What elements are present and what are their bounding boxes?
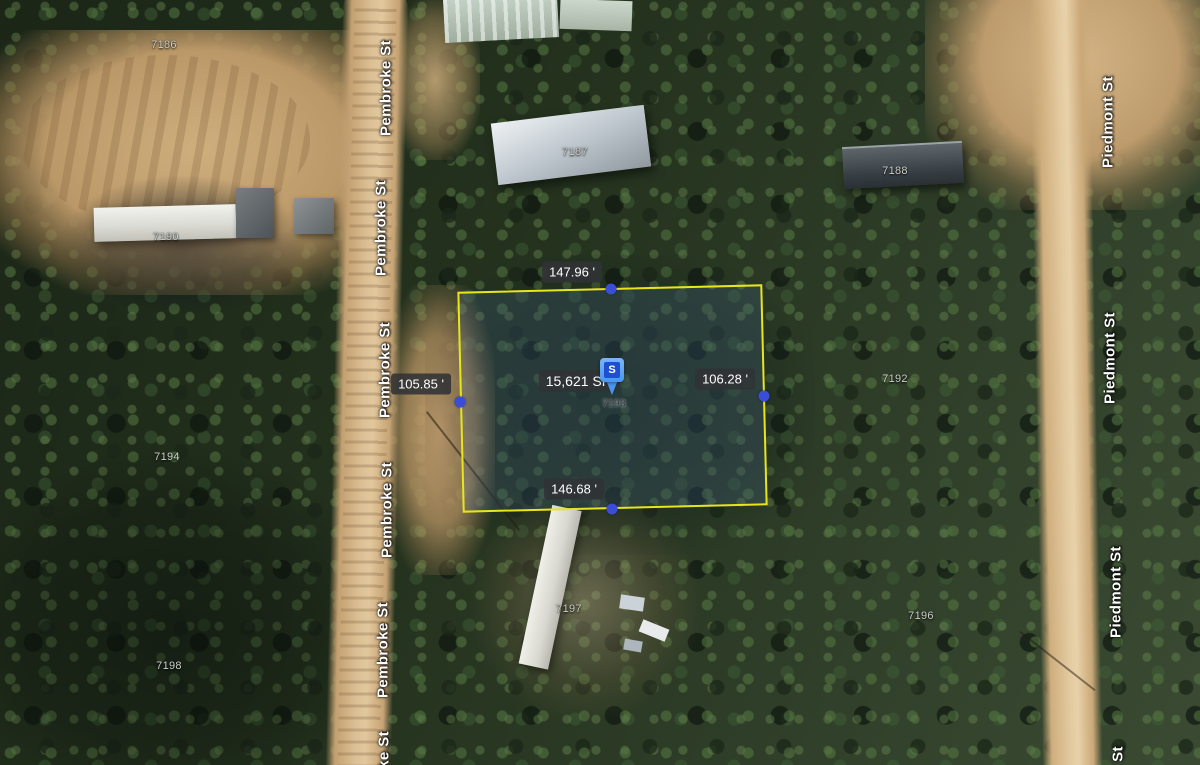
street-label-pembroke-st: Pembroke St [375,602,392,698]
street-label-piedmont-st: Piedmont St [1100,76,1117,168]
satellite-map[interactable]: 147.96 '105.85 '106.28 '146.68 ' 15,621 … [0,0,1200,765]
parcel-number-7187: 7187 [562,146,588,158]
parcel-handle-bottom[interactable] [607,504,618,515]
parcel-number-7197: 7197 [556,603,582,615]
dimension-label-top: 147.96 ' [542,262,602,283]
street-label-pembroke-st: Pembroke St [377,322,394,418]
parcel-handle-left[interactable] [455,397,466,408]
parcel-number-7194: 7194 [154,451,180,463]
dimension-label-right: 106.28 ' [695,369,755,390]
street-label-pembroke-st: Pembroke St [376,731,393,765]
street-label-piedmont-st: Piedmont St [1110,746,1127,765]
street-label-pembroke-st: Pembroke St [373,180,390,276]
marker-badge-icon: S [604,362,620,378]
street-label-pembroke-st: Pembroke St [379,462,396,558]
parcel-number-7198: 7198 [156,660,182,672]
parcel-number-7186: 7186 [151,39,177,51]
marker-tail [606,380,618,395]
parcel-marker-pin[interactable]: S [600,358,624,398]
parcel-number-7192: 7192 [882,373,908,385]
street-label-piedmont-st: Piedmont St [1108,546,1125,638]
parcel-number-7188: 7188 [882,165,908,177]
parcel-number-7190: 7190 [153,231,179,243]
parcel-handle-top[interactable] [606,284,617,295]
dimension-label-left: 105.85 ' [391,374,451,395]
street-label-pembroke-st: Pembroke St [378,40,395,136]
parcel-handle-right[interactable] [759,391,770,402]
dimension-label-bottom: 146.68 ' [544,479,604,500]
street-label-piedmont-st: Piedmont St [1102,312,1119,404]
parcel-id-label: 7193 [602,399,626,410]
parcel-number-7196: 7196 [908,610,934,622]
